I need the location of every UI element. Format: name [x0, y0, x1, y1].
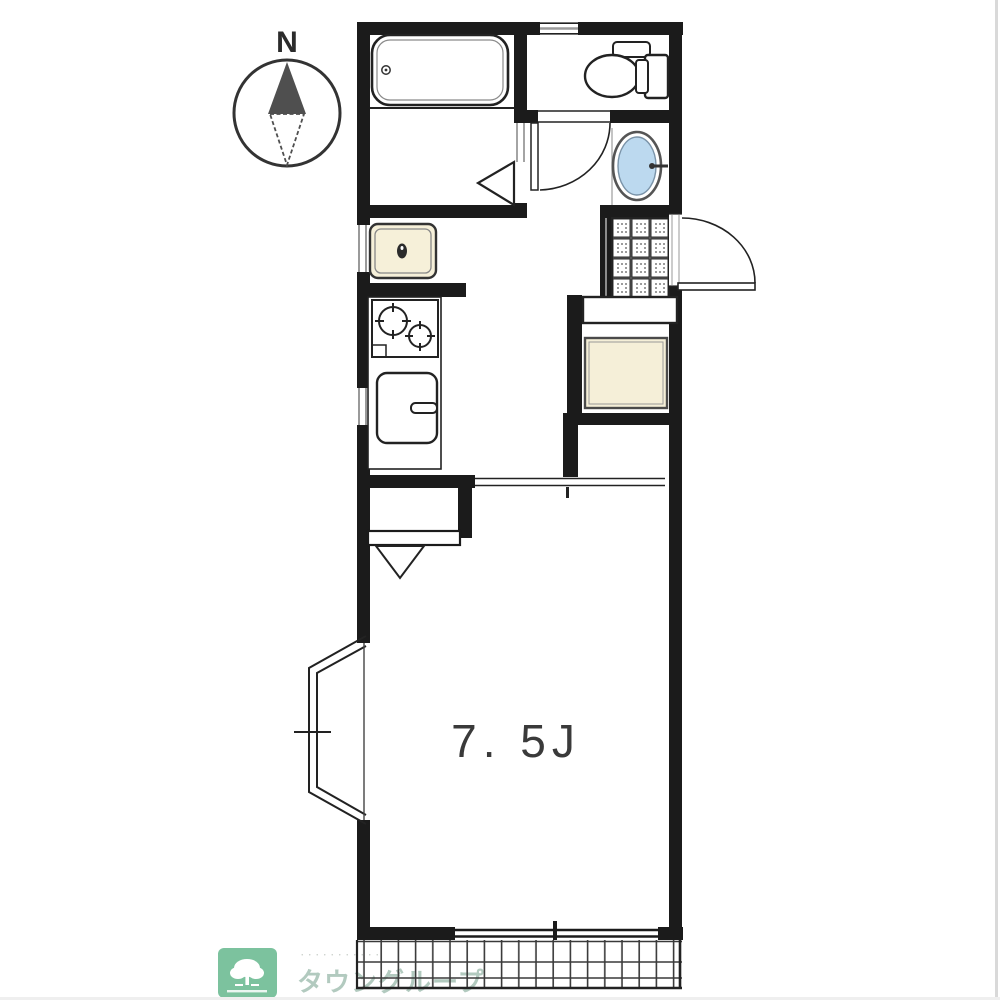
- washbasin: [612, 128, 668, 205]
- compass-north-icon: N: [234, 26, 340, 166]
- compass-label: N: [276, 26, 298, 59]
- entrance-door: [669, 213, 755, 290]
- storage-box: [585, 338, 667, 408]
- south-window: [455, 921, 658, 940]
- room-folding-door: [368, 531, 460, 578]
- room-size-label: 7. 5J: [451, 715, 581, 767]
- floorplan-canvas: ･･･････････ タウングループ: [0, 0, 1000, 1000]
- floorplan-drawing: 7. 5J N: [0, 0, 1000, 1000]
- bathtub: [370, 35, 514, 108]
- washing-machine-pan: [370, 224, 436, 278]
- kitchen-sink: [377, 373, 437, 443]
- sliding-door-track: [475, 479, 665, 499]
- frame-edge: [0, 0, 1000, 1000]
- entrance-tile: [606, 218, 669, 297]
- gas-stove: [372, 300, 438, 357]
- entrance-step: [583, 297, 677, 323]
- toilet-window: [540, 22, 578, 35]
- bay-window: [294, 636, 366, 824]
- left-wall-window-upper: [356, 225, 371, 272]
- toilet: [585, 42, 668, 98]
- toilet-door: [531, 110, 610, 190]
- balcony: [356, 940, 682, 989]
- bathroom-folding-door: [478, 123, 527, 205]
- logo-mark: [218, 948, 277, 998]
